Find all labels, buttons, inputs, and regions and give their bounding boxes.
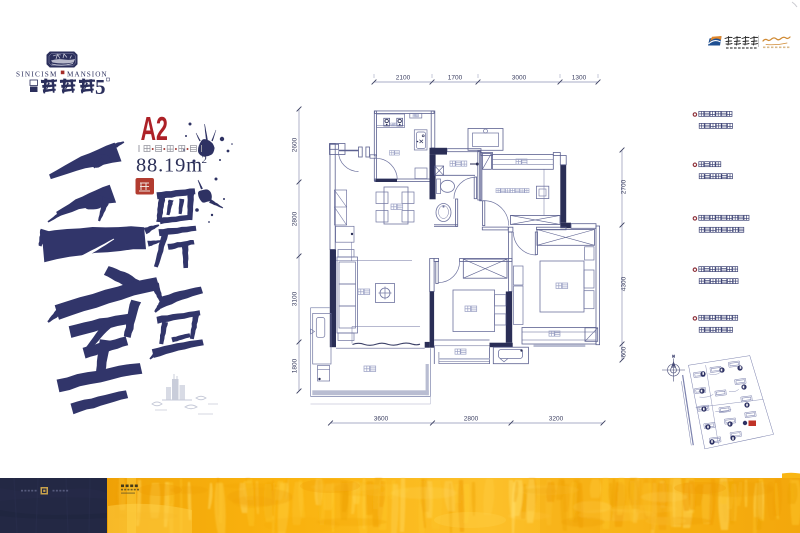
svg-text:A2: A2 [141, 110, 168, 147]
svg-text:5: 5 [95, 75, 106, 99]
svg-text:4300: 4300 [621, 276, 628, 291]
svg-text:2600: 2600 [292, 137, 299, 152]
svg-text:88.19m: 88.19m [136, 155, 203, 177]
svg-text:1300: 1300 [572, 75, 587, 82]
svg-text:2800: 2800 [292, 211, 299, 226]
svg-text:1700: 1700 [448, 75, 463, 82]
svg-text:SINICISM: SINICISM [16, 71, 58, 79]
svg-text:2800: 2800 [464, 416, 479, 423]
svg-text:2: 2 [202, 154, 208, 166]
svg-text:3200: 3200 [549, 416, 564, 423]
svg-text:3600: 3600 [374, 416, 389, 423]
svg-text:3000: 3000 [512, 75, 527, 82]
svg-text:2100: 2100 [396, 75, 411, 82]
svg-text:3100: 3100 [292, 291, 299, 306]
svg-text:1800: 1800 [292, 358, 299, 373]
svg-text:600: 600 [621, 346, 628, 357]
svg-text:2700: 2700 [621, 179, 628, 194]
